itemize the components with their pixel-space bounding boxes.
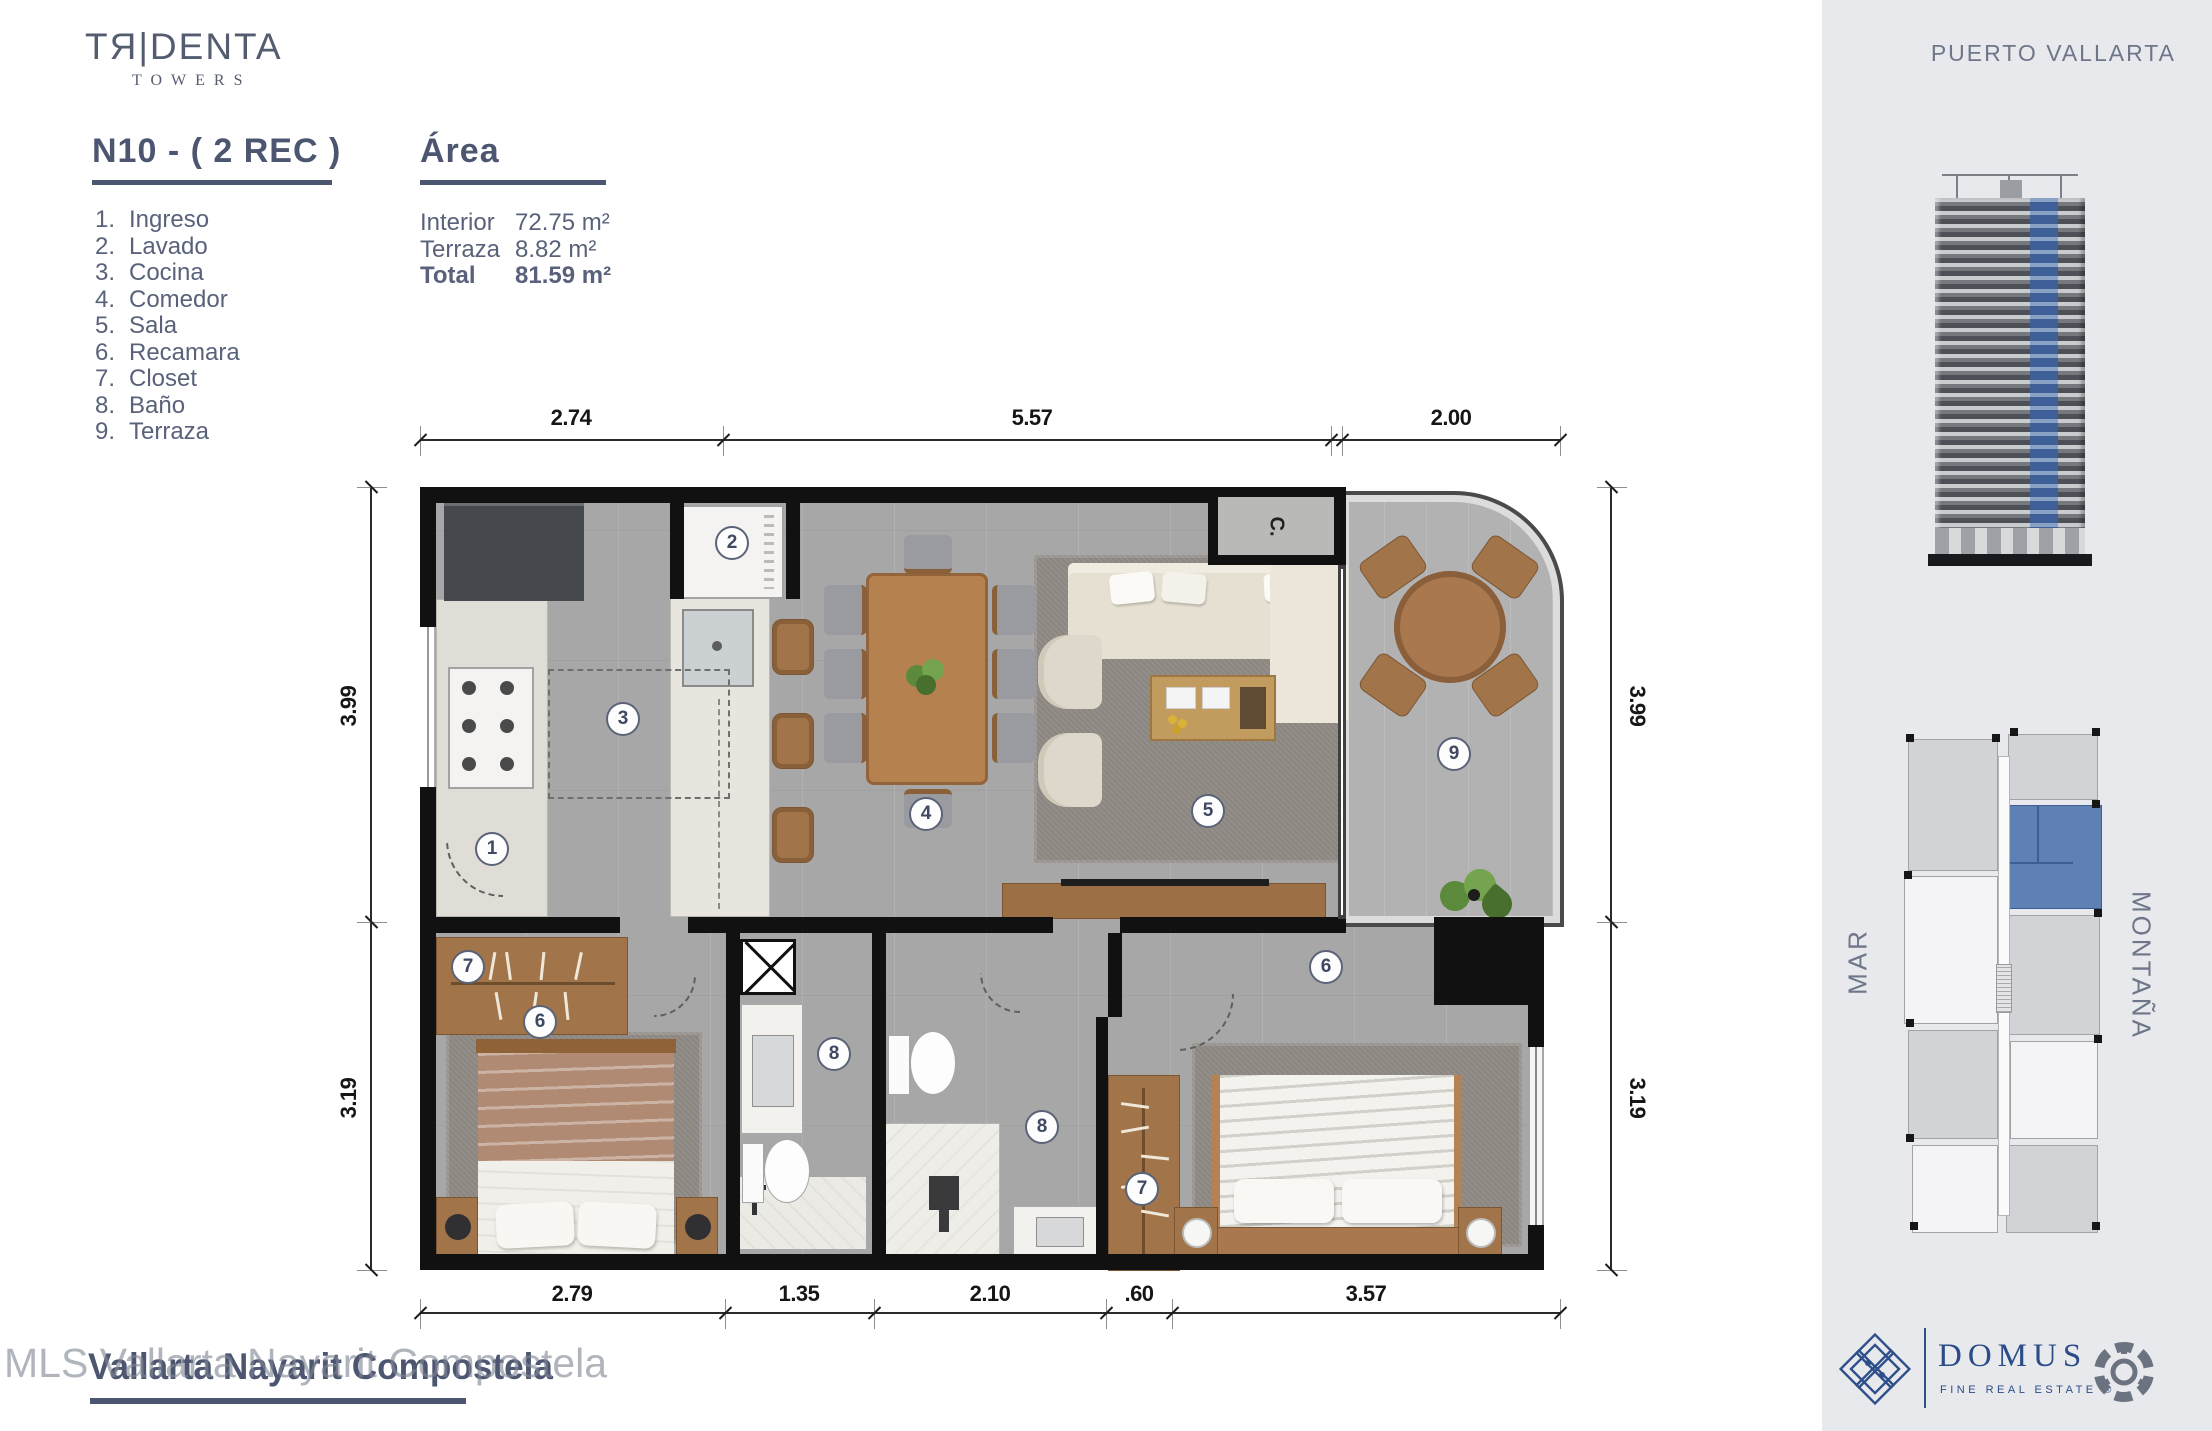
domus-wordmark: DOMUS	[1938, 1338, 2087, 1375]
hall-closet-label: C.	[1265, 516, 1288, 536]
bath1-vanity	[740, 1003, 804, 1135]
marker-comedor: 4	[909, 797, 943, 831]
dim-line-right: 3.99 3.19	[1610, 487, 1612, 1270]
dim-left-1: 3.99	[336, 661, 362, 751]
bath2-toilet-tank	[888, 1035, 910, 1095]
wall-mid-a	[420, 917, 620, 933]
window-right	[1530, 1047, 1542, 1225]
dining-chair	[824, 585, 867, 635]
dim-top-2: 5.57	[987, 405, 1077, 431]
dim-line-top: 2.74 5.57 2.00	[420, 439, 1560, 441]
bath2-shower	[884, 1123, 1000, 1255]
terrace-glass-wall	[1338, 565, 1346, 919]
dim-left-2: 3.19	[336, 1053, 362, 1143]
wall-bed1-bath1	[726, 933, 740, 1254]
dim-bottom-2: 1.35	[754, 1281, 844, 1307]
legend-item: 9.Terraza	[95, 419, 240, 446]
room-legend: 1.Ingreso 2.Lavado 3.Cocina 4.Comedor 5.…	[95, 207, 240, 446]
bed1-bench	[476, 1039, 676, 1053]
dining-chair	[824, 649, 867, 699]
tridenta-logo: TЯ|DENTA	[85, 26, 283, 68]
nightstand	[1174, 1207, 1218, 1259]
marker-terraza: 9	[1437, 737, 1471, 771]
marker-closet-2: 7	[1125, 1172, 1159, 1206]
legend-item: 6.Recamara	[95, 340, 240, 367]
bar-stool	[772, 807, 814, 863]
footer-title-rule	[90, 1398, 466, 1404]
legend-item: 8.Baño	[95, 393, 240, 420]
marker-lavado: 2	[715, 526, 749, 560]
bed2-pillow	[1234, 1179, 1334, 1223]
armchair	[1038, 733, 1102, 807]
domus-divider	[1924, 1328, 1926, 1408]
wall-bottom	[420, 1254, 1544, 1270]
tv	[1061, 879, 1269, 886]
wall-bath1-bath2	[872, 933, 886, 1254]
shaft-block	[1434, 917, 1544, 1005]
legend-item: 1.Ingreso	[95, 207, 240, 234]
bar-stool	[772, 713, 814, 769]
brochure-page: TЯ|DENTA TOWERS N10 - ( 2 REC ) Área 1.I…	[0, 0, 2212, 1431]
wall-right-a	[1528, 1005, 1544, 1047]
wall-laundry-r	[786, 503, 800, 599]
bed1-blanket	[478, 1053, 674, 1161]
wall-top	[420, 487, 1220, 503]
dining-chair	[824, 713, 867, 763]
marker-recamara-2: 6	[1309, 950, 1343, 984]
legend-item: 4.Comedor	[95, 287, 240, 314]
area-row-total: Total81.59 m²	[420, 263, 611, 290]
dim-line-left: 3.99 3.19	[370, 487, 372, 1270]
dining-chair	[992, 585, 1035, 635]
dim-top-3: 2.00	[1406, 405, 1496, 431]
mar-label: MAR	[1843, 912, 1874, 1012]
hall-closet: C.	[1218, 497, 1334, 555]
legend-item: 5.Sala	[95, 313, 240, 340]
nightstand	[676, 1197, 718, 1255]
bar-stool	[772, 619, 814, 675]
fridge-cabinet	[444, 503, 584, 601]
tower-unit-stack-highlight	[2030, 198, 2058, 552]
wall-bath2-closet2	[1096, 1017, 1108, 1254]
marker-bano-1: 8	[817, 1037, 851, 1071]
sofa-chaise	[1270, 563, 1348, 723]
mls-watermark: MLS Vallarta Nayarit Compostela	[4, 1340, 607, 1387]
coffee-table	[1150, 675, 1276, 741]
dining-chair	[904, 535, 952, 574]
area-title-rule	[420, 180, 606, 185]
table-plant	[906, 657, 946, 699]
area-row: Terraza8.82 m²	[420, 237, 611, 264]
dim-top-1: 2.74	[526, 405, 616, 431]
wall-right-b	[1528, 1225, 1544, 1270]
floor-plan: C.	[420, 487, 1560, 1270]
bed1-pillow	[577, 1201, 657, 1249]
dining-chair	[992, 713, 1035, 763]
marker-closet-1: 7	[451, 950, 485, 984]
legend-item: 3.Cocina	[95, 260, 240, 287]
bath2-toilet	[910, 1031, 956, 1095]
bed2-pillow	[1342, 1179, 1442, 1223]
nightstand	[1458, 1207, 1502, 1259]
pinwheel-logo-icon	[2086, 1334, 2162, 1410]
bath1-toilet-tank	[742, 1143, 764, 1203]
duct-shaft	[740, 939, 796, 995]
wall-mid-c	[1120, 917, 1346, 933]
stove	[448, 667, 534, 789]
tridenta-logo-sub: TOWERS	[132, 72, 251, 90]
domus-knot-icon	[1838, 1330, 1912, 1408]
kitchen-projection-dashed	[548, 669, 730, 799]
marker-recamara-1: 6	[523, 1005, 557, 1039]
terrace-table	[1394, 571, 1506, 683]
montana-label: MONTAÑA	[2126, 891, 2157, 1041]
dim-bottom-5: 3.57	[1321, 1281, 1411, 1307]
dim-line-bottom: 2.79 1.35 2.10 .60 3.57	[420, 1312, 1560, 1314]
keyplan-unit-highlight	[2008, 805, 2102, 909]
right-sidebar: PUERTO VALLARTA	[1822, 0, 2212, 1431]
location-label: PUERTO VALLARTA	[1931, 40, 2176, 67]
keyplan	[1902, 712, 2106, 1260]
dining-table	[866, 573, 988, 785]
armchair	[1038, 635, 1102, 709]
nightstand	[436, 1197, 478, 1255]
unit-title-rule	[92, 180, 332, 185]
window-left	[422, 627, 434, 787]
area-row: Interior72.75 m²	[420, 210, 611, 237]
marker-cocina: 3	[606, 702, 640, 736]
tv-console	[1002, 883, 1326, 919]
wall-left-upper	[420, 487, 436, 627]
dining-chair	[992, 649, 1035, 699]
tower-elevation	[1928, 172, 2092, 566]
wall-mid-b	[688, 917, 1053, 933]
bed1-pillow	[495, 1201, 575, 1249]
wall-left-lower	[420, 787, 436, 1270]
marker-sala: 5	[1191, 794, 1225, 828]
dim-bottom-4: .60	[1094, 1281, 1184, 1307]
bed1	[478, 1053, 674, 1259]
bed2	[1220, 1075, 1454, 1231]
wall-laundry-l	[670, 503, 684, 599]
marker-bano-2: 8	[1025, 1110, 1059, 1144]
area-title: Área	[420, 132, 500, 171]
legend-item: 2.Lavado	[95, 234, 240, 261]
legend-item: 7.Closet	[95, 366, 240, 393]
unit-title: N10 - ( 2 REC )	[92, 132, 341, 171]
area-table: Interior72.75 m² Terraza8.82 m² Total81.…	[420, 210, 611, 290]
marker-ingreso: 1	[475, 832, 509, 866]
dim-right-2: 3.19	[1624, 1053, 1650, 1143]
bath1-toilet	[764, 1139, 810, 1203]
dim-right-1: 3.99	[1624, 661, 1650, 751]
dim-bottom-3: 2.10	[945, 1281, 1035, 1307]
dim-bottom-1: 2.79	[527, 1281, 617, 1307]
bath2-vanity	[1012, 1205, 1104, 1257]
